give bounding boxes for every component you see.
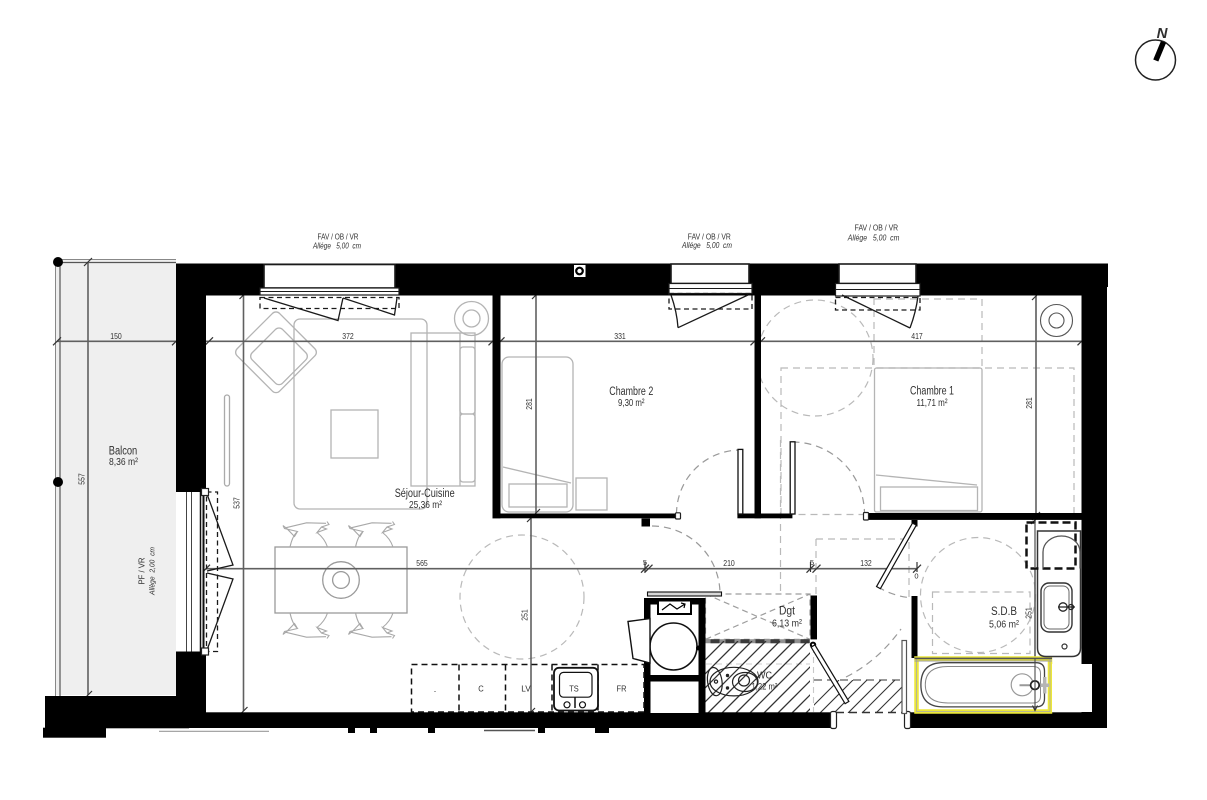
svg-text:WC: WC: [757, 670, 772, 682]
svg-text:Allége 5,00 cm: Allége 5,00 cm: [681, 241, 732, 250]
svg-text:331: 331: [614, 331, 626, 341]
svg-text:C: C: [478, 684, 484, 694]
svg-text:Séjour-Cuisine: Séjour-Cuisine: [395, 488, 455, 500]
svg-text:281: 281: [1024, 397, 1034, 409]
svg-text:5: 5: [810, 558, 814, 567]
svg-text:150: 150: [110, 331, 122, 341]
svg-text:FAV / OB / VR: FAV / OB / VR: [318, 231, 359, 241]
svg-text:1,22 m²: 1,22 m²: [752, 682, 778, 693]
svg-text:25,36 m²: 25,36 m²: [409, 499, 442, 511]
svg-text:.: .: [434, 684, 437, 694]
svg-text:FR: FR: [617, 684, 627, 694]
svg-text:251: 251: [520, 609, 530, 621]
svg-text:6,13 m²: 6,13 m²: [772, 618, 802, 630]
svg-text:Dgt: Dgt: [779, 606, 796, 618]
svg-text:557: 557: [77, 473, 87, 485]
svg-text:565: 565: [416, 558, 428, 568]
svg-text:251: 251: [1024, 607, 1034, 619]
svg-text:372: 372: [342, 331, 354, 341]
svg-text:210: 210: [723, 558, 735, 568]
svg-text:Allège 2,00 cm: Allège 2,00 cm: [148, 547, 157, 596]
svg-text:TS: TS: [569, 684, 579, 694]
svg-text:9,30 m²: 9,30 m²: [618, 397, 645, 409]
svg-text:0: 0: [914, 572, 918, 581]
svg-text:417: 417: [911, 331, 923, 341]
svg-text:Allége 5,00 cm: Allége 5,00 cm: [312, 241, 361, 250]
svg-text:11,71 m²: 11,71 m²: [917, 397, 948, 409]
svg-text:FAV / OB / VR: FAV / OB / VR: [855, 223, 899, 233]
svg-text:LV: LV: [521, 684, 531, 694]
svg-text:8,36 m²: 8,36 m²: [109, 456, 138, 468]
svg-text:Chambre 1: Chambre 1: [910, 386, 954, 398]
svg-text:537: 537: [232, 497, 242, 509]
svg-text:FAV / OB / VR: FAV / OB / VR: [688, 231, 731, 241]
svg-text:Allége 5,00 cm: Allége 5,00 cm: [847, 233, 900, 242]
svg-text:281: 281: [524, 398, 534, 410]
svg-text:N: N: [1157, 25, 1169, 42]
svg-text:132: 132: [860, 558, 872, 568]
svg-text:5: 5: [643, 558, 647, 567]
svg-text:5,06 m²: 5,06 m²: [989, 619, 1019, 631]
svg-text:PF / VR: PF / VR: [137, 558, 147, 585]
svg-text:S.D.B: S.D.B: [991, 606, 1017, 618]
